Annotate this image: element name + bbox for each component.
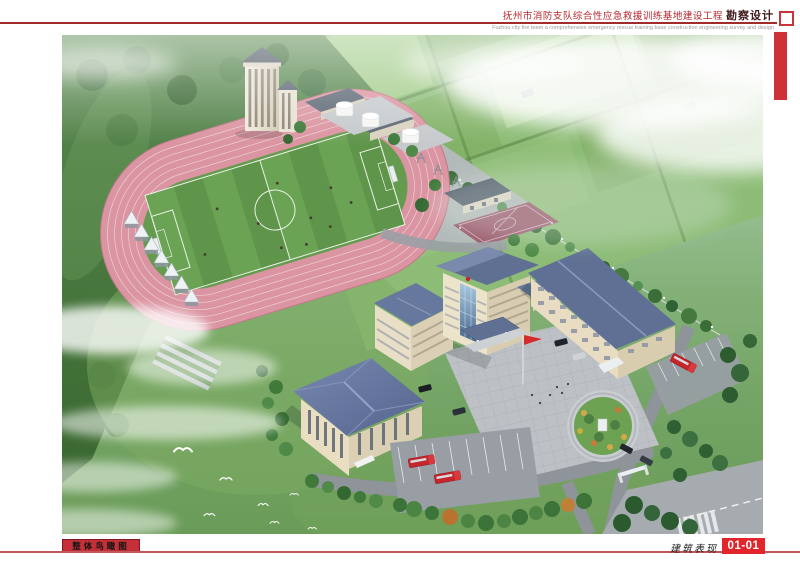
header-rule (0, 22, 777, 24)
presentation-board: 抚州市消防支队综合性应急救援训练基地建设工程 勘察设计 Fuzhou city … (0, 0, 800, 566)
aerial-rendering-image (62, 35, 763, 534)
sheet-title-cn: 抚州市消防支队综合性应急救援训练基地建设工程 (503, 11, 723, 22)
sculpture (598, 419, 607, 431)
header-corner-mark (779, 11, 794, 26)
sheet-subtitle-en: Fuzhou city fire team a comprehensive em… (492, 25, 774, 31)
national-emblem (466, 277, 470, 281)
category-label: 建筑表现 (670, 540, 718, 555)
side-accent-bar (774, 32, 787, 100)
sheet-number: 01-01 (722, 538, 765, 554)
sheet-title-suffix: 勘察设计 (726, 10, 774, 22)
